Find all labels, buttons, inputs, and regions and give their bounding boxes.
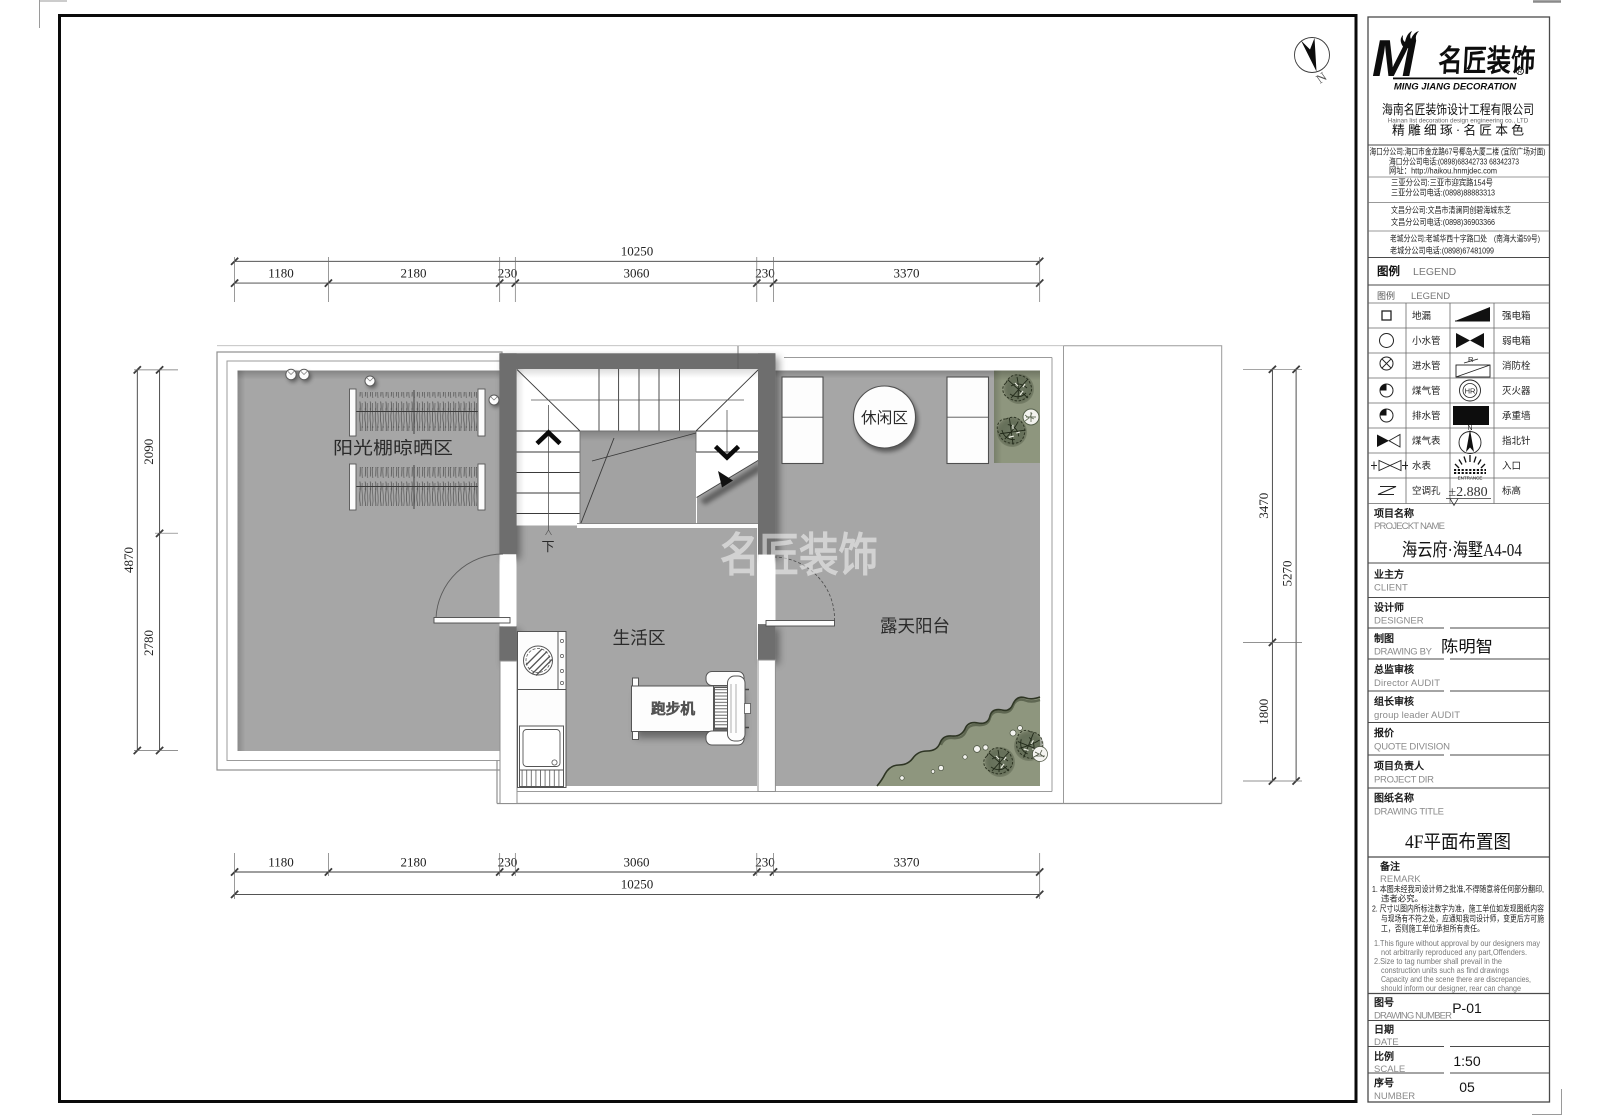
svg-text:2090: 2090 xyxy=(141,439,156,465)
svg-text:报价: 报价 xyxy=(1374,727,1395,740)
svg-text:网址：http://haikou.hnmjdec.com: 网址：http://haikou.hnmjdec.com xyxy=(1389,165,1497,176)
svg-text:QUOTE DIVISION: QUOTE DIVISION xyxy=(1374,742,1450,753)
svg-text:P-01: P-01 xyxy=(1452,1000,1482,1016)
svg-text:NUMBER: NUMBER xyxy=(1374,1091,1415,1102)
svg-text:强电箱: 强电箱 xyxy=(1502,310,1531,322)
svg-text:2180: 2180 xyxy=(401,266,427,281)
svg-text:进水管: 进水管 xyxy=(1412,360,1441,372)
svg-text:入口: 入口 xyxy=(1502,461,1521,472)
svg-text:4870: 4870 xyxy=(121,547,136,573)
svg-text:生活区: 生活区 xyxy=(613,628,666,648)
svg-text:DRAWING NUMBER: DRAWING NUMBER xyxy=(1374,1011,1452,1022)
svg-text:3060: 3060 xyxy=(624,266,650,281)
svg-text:设计师: 设计师 xyxy=(1374,601,1404,614)
svg-text:230: 230 xyxy=(755,855,775,870)
svg-text:与现场有不符之处，应通知我司设计师，变更后方可施: 与现场有不符之处，应通知我司设计师，变更后方可施 xyxy=(1381,913,1544,924)
svg-text:工，否则施工单位承担所有责任。: 工，否则施工单位承担所有责任。 xyxy=(1381,923,1484,934)
svg-text:R: R xyxy=(1468,355,1474,364)
svg-text:MING JIANG DECORATION: MING JIANG DECORATION xyxy=(1394,82,1517,93)
svg-text:CLIENT: CLIENT xyxy=(1374,583,1408,594)
svg-text:弱电箱: 弱电箱 xyxy=(1502,335,1531,347)
svg-text:文昌分公司电话:(0898)36903366: 文昌分公司电话:(0898)36903366 xyxy=(1391,216,1495,227)
svg-text:海南名匠装饰设计工程有限公司: 海南名匠装饰设计工程有限公司 xyxy=(1382,102,1534,117)
svg-text:下: 下 xyxy=(541,539,554,554)
svg-text:图纸名称: 图纸名称 xyxy=(1374,792,1414,805)
svg-text:名匠装饰: 名匠装饰 xyxy=(720,529,878,581)
svg-text:业主方: 业主方 xyxy=(1374,568,1404,581)
svg-text:老城分公司:老城华西十字路口处 (南海大道59号): 老城分公司:老城华西十字路口处 (南海大道59号) xyxy=(1390,233,1540,244)
svg-text:海云府·海墅A4-04: 海云府·海墅A4-04 xyxy=(1402,540,1522,560)
svg-text:3370: 3370 xyxy=(894,266,920,281)
svg-text:1:50: 1:50 xyxy=(1453,1053,1480,1069)
svg-text:陈明智: 陈明智 xyxy=(1441,638,1493,656)
svg-text:2180: 2180 xyxy=(401,855,427,870)
svg-text:1. 本图未经我司设计师之批准,不得随意将任何部分翻印,: 1. 本图未经我司设计师之批准,不得随意将任何部分翻印, xyxy=(1372,883,1544,894)
svg-text:LEGEND: LEGEND xyxy=(1413,266,1457,278)
svg-text:3470: 3470 xyxy=(1256,493,1271,519)
svg-text:消防栓: 消防栓 xyxy=(1502,360,1531,372)
svg-text:LEGEND: LEGEND xyxy=(1411,291,1450,302)
svg-text:文昌分公司:文昌市清澜同创碧海城东芝: 文昌分公司:文昌市清澜同创碧海城东芝 xyxy=(1391,204,1511,215)
svg-text:灭火器: 灭火器 xyxy=(1502,386,1531,397)
svg-text:ENTRANCE: ENTRANCE xyxy=(1458,476,1483,481)
svg-text:标高: 标高 xyxy=(1502,485,1521,497)
svg-text:4F平面布置图: 4F平面布置图 xyxy=(1405,831,1511,853)
svg-text:休闲区: 休闲区 xyxy=(861,409,908,427)
svg-text:10250: 10250 xyxy=(621,244,654,259)
svg-text:230: 230 xyxy=(755,266,775,281)
svg-text:制图: 制图 xyxy=(1374,632,1394,645)
svg-text:水表: 水表 xyxy=(1412,460,1432,472)
svg-text:阳光棚晾晒区: 阳光棚晾晒区 xyxy=(333,438,453,458)
svg-text:230: 230 xyxy=(498,855,518,870)
svg-text:违者必究。: 违者必究。 xyxy=(1381,893,1423,904)
svg-text:小水管: 小水管 xyxy=(1412,335,1441,347)
svg-text:比例: 比例 xyxy=(1374,1050,1394,1063)
svg-text:项目名称: 项目名称 xyxy=(1374,507,1414,520)
svg-text:图例: 图例 xyxy=(1377,264,1400,278)
svg-text:2. 尺寸以图内所标注数字为准，施工单位如发现图纸内容: 2. 尺寸以图内所标注数字为准，施工单位如发现图纸内容 xyxy=(1372,903,1544,914)
svg-text:日期: 日期 xyxy=(1374,1023,1394,1036)
svg-text:5270: 5270 xyxy=(1280,561,1295,587)
svg-text:承重墙: 承重墙 xyxy=(1502,410,1531,422)
svg-text:地漏: 地漏 xyxy=(1412,310,1431,322)
svg-text:±2.880: ±2.880 xyxy=(1448,485,1487,500)
svg-text:图号: 图号 xyxy=(1374,997,1394,1009)
svg-text:2780: 2780 xyxy=(141,630,156,656)
svg-text:图例: 图例 xyxy=(1377,290,1395,301)
svg-text:05: 05 xyxy=(1459,1079,1475,1095)
svg-text:1180: 1180 xyxy=(268,266,294,281)
svg-text:煤气表: 煤气表 xyxy=(1412,435,1441,447)
svg-text:PROJECT DIR: PROJECT DIR xyxy=(1374,775,1434,786)
svg-text:精 雕 细 琢 · 名 匠 本 色: 精 雕 细 琢 · 名 匠 本 色 xyxy=(1392,123,1525,138)
svg-text:组长审核: 组长审核 xyxy=(1374,695,1414,708)
svg-text:DRAWING BY: DRAWING BY xyxy=(1374,647,1433,658)
svg-text:230: 230 xyxy=(498,266,518,281)
svg-text:3060: 3060 xyxy=(624,855,650,870)
svg-text:露天阳台: 露天阳台 xyxy=(880,616,950,636)
svg-text:排水管: 排水管 xyxy=(1412,410,1441,422)
svg-text:10250: 10250 xyxy=(621,877,654,892)
svg-text:HR: HR xyxy=(1465,387,1476,396)
svg-text:should inform our designer, re: should inform our designer, rear can cha… xyxy=(1381,983,1521,993)
svg-text:1800: 1800 xyxy=(1256,699,1271,725)
svg-text:1180: 1180 xyxy=(268,855,294,870)
svg-text:项目负责人: 项目负责人 xyxy=(1374,760,1425,773)
svg-text:group leader AUDIT: group leader AUDIT xyxy=(1374,710,1460,721)
svg-text:序号: 序号 xyxy=(1374,1077,1394,1090)
svg-text:N: N xyxy=(1467,425,1472,432)
svg-text:三亚分公司电话:(0898)88883313: 三亚分公司电话:(0898)88883313 xyxy=(1391,187,1495,198)
svg-text:跑步机: 跑步机 xyxy=(651,701,696,718)
svg-text:DRAWING TITLE: DRAWING TITLE xyxy=(1374,807,1444,818)
svg-text:指北针: 指北针 xyxy=(1502,435,1531,447)
svg-text:3370: 3370 xyxy=(894,855,920,870)
svg-text:煤气管: 煤气管 xyxy=(1412,385,1441,397)
svg-text:R: R xyxy=(1518,70,1522,76)
svg-text:DESIGNER: DESIGNER xyxy=(1374,616,1424,627)
svg-text:三亚分公司:三亚市迎宾路154号: 三亚分公司:三亚市迎宾路154号 xyxy=(1391,177,1493,188)
svg-text:PROJECKT NAME: PROJECKT NAME xyxy=(1374,521,1445,532)
svg-text:备注: 备注 xyxy=(1379,860,1400,873)
svg-text:总监审核: 总监审核 xyxy=(1374,663,1414,676)
svg-text:空调孔: 空调孔 xyxy=(1412,485,1441,497)
svg-text:海口分公司:海口市金龙路67号椰岛大厦二楼 (宜欣广场对面): 海口分公司:海口市金龙路67号椰岛大厦二楼 (宜欣广场对面) xyxy=(1370,146,1546,157)
svg-text:老城分公司电话:(0898)67481099: 老城分公司电话:(0898)67481099 xyxy=(1390,245,1494,256)
svg-text:Director AUDIT: Director AUDIT xyxy=(1374,678,1440,689)
